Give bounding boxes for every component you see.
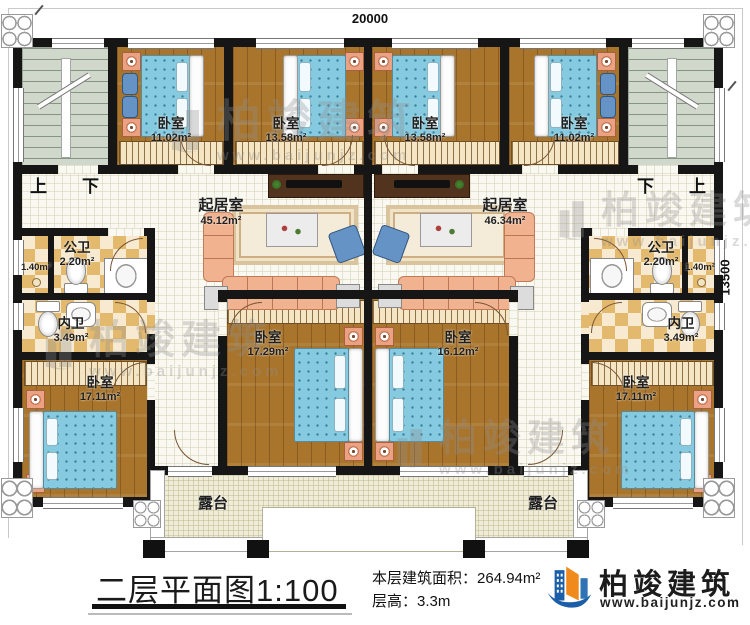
room-area: 3.49m² (648, 332, 714, 344)
terrace-post (247, 540, 269, 558)
nightstand (122, 52, 141, 71)
nightstand (344, 442, 363, 461)
stair-up-label: 上 (30, 172, 47, 197)
door-opening (147, 364, 155, 400)
wall (224, 38, 233, 174)
pillow (680, 452, 692, 480)
wall (619, 38, 628, 174)
room-area: 3.49m² (38, 332, 104, 344)
bedroom-sofa (122, 73, 138, 95)
dimension-width: 20000 (335, 11, 405, 26)
terrace-recess (262, 507, 476, 552)
nightstand (375, 327, 394, 346)
terrace-door (524, 466, 568, 477)
room-label-bedroom-bottom-right: 卧室 17.11m² (598, 376, 674, 403)
room-label-terrace-left: 露台 (188, 496, 238, 513)
room-label-inner-bath-left: 内卫 3.49m² (38, 317, 104, 344)
window (52, 38, 104, 49)
room-name: 卧室 (249, 117, 323, 132)
dimension-tick (727, 81, 736, 91)
room-area: 16.12m² (423, 346, 493, 358)
wall (372, 290, 518, 299)
dimension-height: 13500 (718, 243, 733, 313)
bedroom-sofa (600, 73, 616, 95)
window (714, 88, 725, 162)
pillow (334, 398, 346, 432)
room-area: 13.58m² (249, 132, 323, 144)
bedroom-sofa (122, 96, 138, 118)
brand-url: www.baijunjz.com (600, 595, 741, 610)
floor-plan-canvas: 20000 13500 (0, 0, 750, 625)
nightstand (345, 52, 364, 71)
window (13, 303, 24, 330)
door-opening (218, 302, 227, 336)
room-name: 公卫 (628, 241, 694, 256)
window (13, 408, 24, 462)
wall (22, 293, 155, 300)
room-area: 17.11m² (62, 391, 138, 403)
frame-line-top (8, 8, 742, 9)
room-area: 1.40m² (681, 263, 719, 273)
corner-column-ornament (703, 478, 735, 518)
door-opening (581, 302, 589, 334)
corner-column-ornament (1, 478, 33, 518)
closet-knob (32, 278, 41, 287)
room-area: 13.58m² (388, 132, 462, 144)
window (632, 38, 684, 49)
room-area: 11.02m² (134, 132, 208, 144)
wall (218, 290, 364, 299)
corner-column-ornament (577, 500, 605, 528)
stair-down-label: 下 (637, 172, 654, 197)
stair-down-label: 下 (82, 172, 99, 197)
bed-headboard (375, 348, 390, 442)
wall (364, 38, 372, 475)
door-opening (108, 228, 144, 236)
room-label-terrace-right: 露台 (518, 496, 568, 513)
pillow (392, 355, 404, 389)
frame-line-left (8, 8, 9, 538)
pillow (550, 62, 562, 92)
room-name: 露台 (518, 496, 568, 513)
room-label-living-right: 起居室 46.34m² (462, 198, 548, 227)
room-label-bedroom-mid-right: 卧室 16.12m² (423, 331, 493, 358)
title-underline (92, 604, 346, 609)
room-name: 起居室 (178, 198, 264, 215)
floor-height-label: 层高： (372, 593, 417, 610)
room-label-bedroom-top-b: 卧室 13.58m² (249, 117, 323, 144)
corner-column-ornament (1, 14, 33, 48)
room-name: 内卫 (648, 317, 714, 332)
door-opening (178, 165, 214, 174)
window (520, 38, 606, 49)
room-area: 17.29m² (233, 346, 303, 358)
room-label-bedroom-top-c: 卧室 13.58m² (388, 117, 462, 144)
pillow (176, 62, 188, 92)
wall (108, 38, 117, 174)
terrace-post (567, 540, 589, 558)
title-underline-thin (88, 613, 352, 615)
stair-rail (667, 58, 677, 158)
nightstand (375, 442, 394, 461)
room-name: 卧室 (62, 376, 138, 391)
wall (581, 352, 714, 360)
room-area: 45.12m² (178, 215, 264, 227)
wall (22, 352, 155, 360)
door-opening (592, 228, 628, 236)
door-opening (509, 302, 518, 336)
room-label-living-left: 起居室 45.12m² (178, 198, 264, 227)
corner-column-ornament (133, 500, 161, 528)
nightstand (26, 390, 45, 409)
room-area: 1.40m² (17, 263, 55, 273)
terrace-post (143, 540, 165, 558)
room-label-closet-right: 1.40m² (681, 263, 719, 273)
window (392, 38, 478, 49)
room-name: 卧室 (388, 117, 462, 132)
nightstand (374, 52, 393, 71)
room-name: 卧室 (233, 331, 303, 346)
room-label-bedroom-bottom-left: 卧室 17.11m² (62, 376, 138, 403)
wall (500, 38, 509, 174)
room-label-bedroom-top-a: 卧室 11.02m² (134, 117, 208, 144)
window (400, 466, 488, 477)
room-name: 露台 (188, 496, 238, 513)
window (256, 38, 344, 49)
plant (272, 180, 281, 189)
building-area-info: 本层建筑面积：264.94m² (372, 567, 540, 588)
window (714, 408, 725, 462)
room-label-closet-left: 1.40m² (17, 263, 55, 273)
room-name: 内卫 (38, 317, 104, 332)
stair-up-label: 上 (689, 172, 706, 197)
plant (455, 180, 464, 189)
door-opening (147, 302, 155, 334)
coffee-table (266, 213, 318, 247)
tv (394, 180, 450, 188)
nightstand (597, 52, 616, 71)
room-name: 起居室 (462, 198, 548, 215)
room-name: 卧室 (134, 117, 208, 132)
tv (286, 180, 342, 188)
nightstand (693, 390, 712, 409)
room-name: 公卫 (44, 241, 110, 256)
wall (581, 293, 714, 300)
bed-headboard (348, 348, 363, 442)
pillow (334, 355, 346, 389)
door-opening (382, 165, 418, 174)
window (128, 38, 214, 49)
corner-column-ornament (703, 14, 735, 48)
window (43, 497, 123, 509)
terrace-door (168, 466, 212, 477)
pillow (427, 62, 439, 92)
room-area: 17.11m² (598, 391, 674, 403)
bedroom-sofa (600, 96, 616, 118)
pillow (46, 452, 58, 480)
floor-height-value: 3.3m (417, 593, 450, 610)
building-area-value: 264.94m² (477, 570, 540, 587)
window (13, 88, 24, 162)
door-opening (318, 165, 354, 174)
closet-knob (697, 278, 706, 287)
plan-title-text: 二层平面图 (96, 573, 256, 608)
room-name: 卧室 (598, 376, 674, 391)
door-opening (581, 364, 589, 400)
pillow (680, 418, 692, 446)
room-area: 46.34m² (462, 215, 548, 227)
brand-logo-icon (543, 562, 593, 614)
room-name: 卧室 (537, 117, 611, 132)
frame-line-right (742, 8, 743, 545)
terrace-post (463, 540, 485, 558)
door-opening (522, 165, 558, 174)
floor-height-info: 层高：3.3m (372, 590, 450, 611)
room-label-bedroom-mid-left: 卧室 17.29m² (233, 331, 303, 358)
window (613, 497, 693, 509)
pillow (299, 62, 311, 92)
pillow (392, 398, 404, 432)
dimension-tick (34, 5, 43, 15)
stair-rail (61, 58, 71, 158)
window (248, 466, 336, 477)
room-label-bedroom-top-d: 卧室 11.02m² (537, 117, 611, 144)
plan-scale: 1:100 (256, 573, 339, 608)
building-area-label: 本层建筑面积： (372, 570, 477, 587)
room-label-inner-bath-right: 内卫 3.49m² (648, 317, 714, 344)
room-name: 卧室 (423, 331, 493, 346)
nightstand (344, 327, 363, 346)
pillow (46, 418, 58, 446)
room-area: 11.02m² (537, 132, 611, 144)
